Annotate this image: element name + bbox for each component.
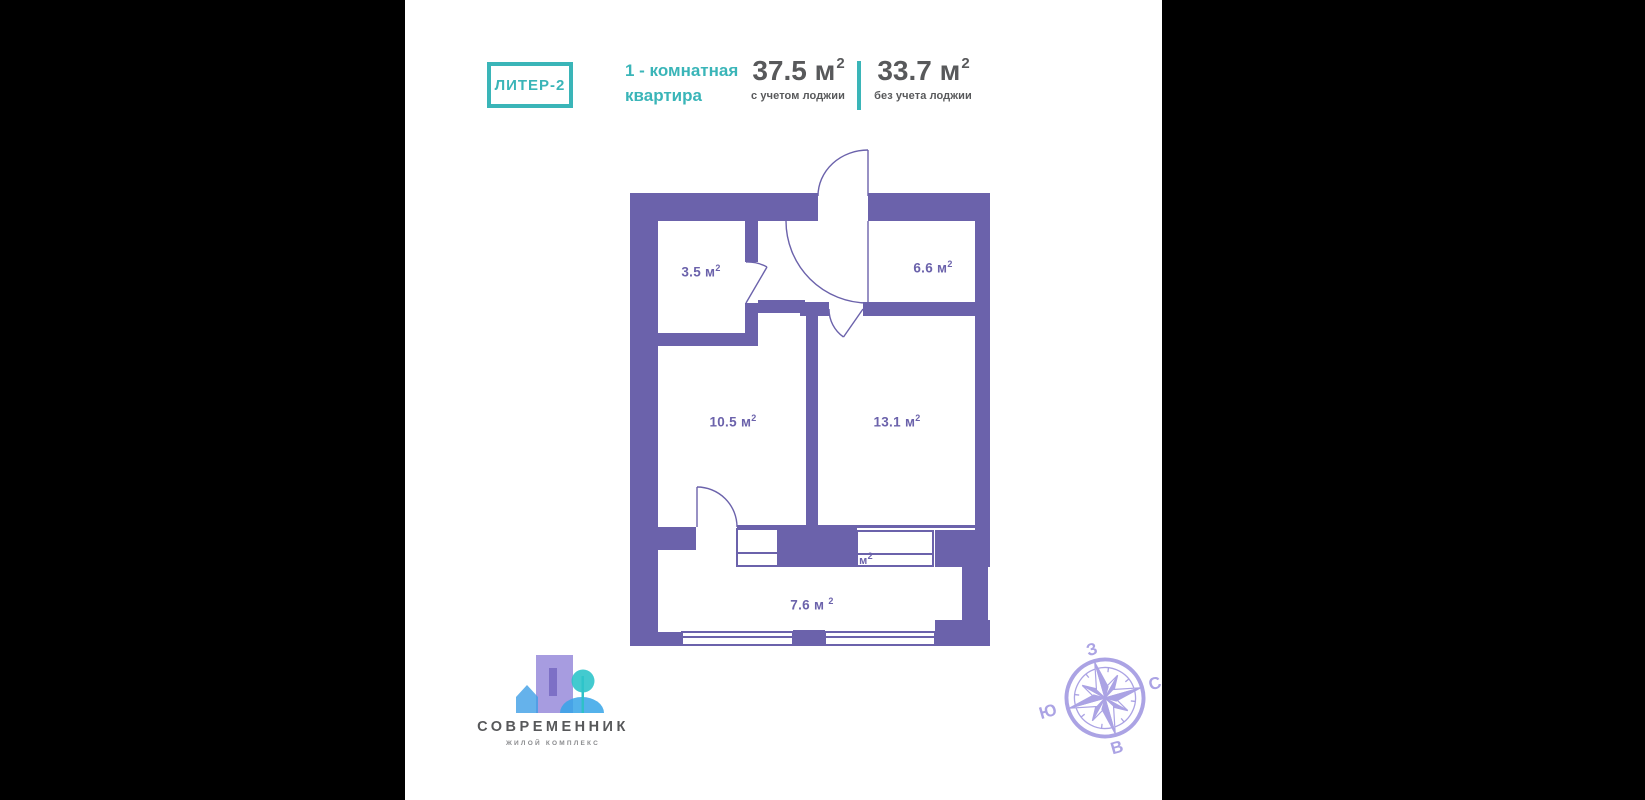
- loggia-door-arc: [697, 487, 737, 527]
- logo-tree-icon: [572, 670, 595, 693]
- entrance-door-arc: [818, 150, 868, 196]
- room-label-hidden-fragment: м2: [859, 551, 873, 567]
- logo-building-window: [549, 668, 557, 696]
- room-label-kitchen: 6.6 м2: [913, 259, 952, 276]
- logo-subtitle: ЖИЛОЙ КОМПЛЕКС: [506, 740, 600, 747]
- bathroom-door-arc: [746, 262, 767, 267]
- room-label-living-room: 10.5 м2: [709, 413, 756, 430]
- bedroom-door-arc: [829, 309, 844, 337]
- floor-plan-drawing: [405, 0, 1162, 800]
- poster-canvas: ЛИТЕР-2 1 - комнатная квартира 37.5 м2 с…: [405, 0, 1162, 800]
- logo-title: СОВРЕМЕННИК: [477, 719, 629, 735]
- logo-house-icon: [516, 685, 538, 713]
- bedroom-door-leaf: [844, 309, 864, 337]
- kitchen-door-arc: [786, 221, 868, 303]
- compass-rose-icon: [1057, 650, 1152, 745]
- wall-notch: [969, 221, 975, 233]
- room-label-loggia: 7.6 м 2: [790, 596, 833, 613]
- bathroom-door-leaf: [746, 267, 767, 303]
- logo-icon: [516, 655, 604, 713]
- room-label-bedroom: 13.1 м2: [873, 413, 920, 430]
- room-label-bathroom: 3.5 м2: [681, 263, 720, 280]
